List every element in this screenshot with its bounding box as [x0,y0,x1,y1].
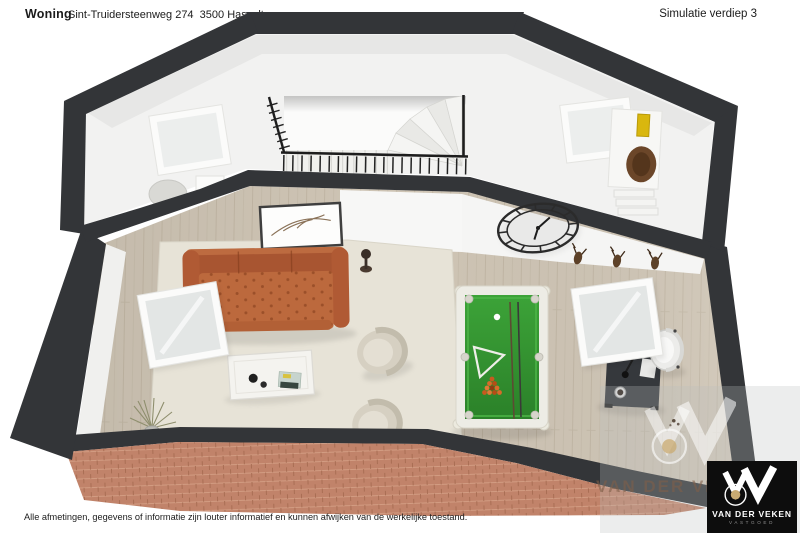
dresser [608,109,662,190]
decor-books [278,372,301,389]
agency-logo: VAN DER VEKEN VASTGOED [707,461,797,533]
floorplan-page: Woning Sint-Truidersteenweg 274 3500 Has… [0,0,800,533]
shelf-unit [614,190,658,215]
agency-logo-name: VAN DER VEKEN [707,509,797,519]
skylight-window-upper-left [149,105,231,176]
pool-table [452,286,552,440]
skylight-window-lower-right [571,277,666,370]
cue-ball [494,314,500,320]
disclaimer-text: Alle afmetingen, gegevens of informatie … [24,512,467,522]
agency-logo-tagline: VASTGOED [707,519,797,526]
coffee-table [222,350,321,408]
agency-logo-mark [713,465,791,509]
skylight-window-lower-left [137,281,231,372]
yellow-object [637,114,650,137]
left-wall-upper [60,101,86,234]
picture-frame-branches [260,203,342,249]
ridge-wall [246,12,524,34]
